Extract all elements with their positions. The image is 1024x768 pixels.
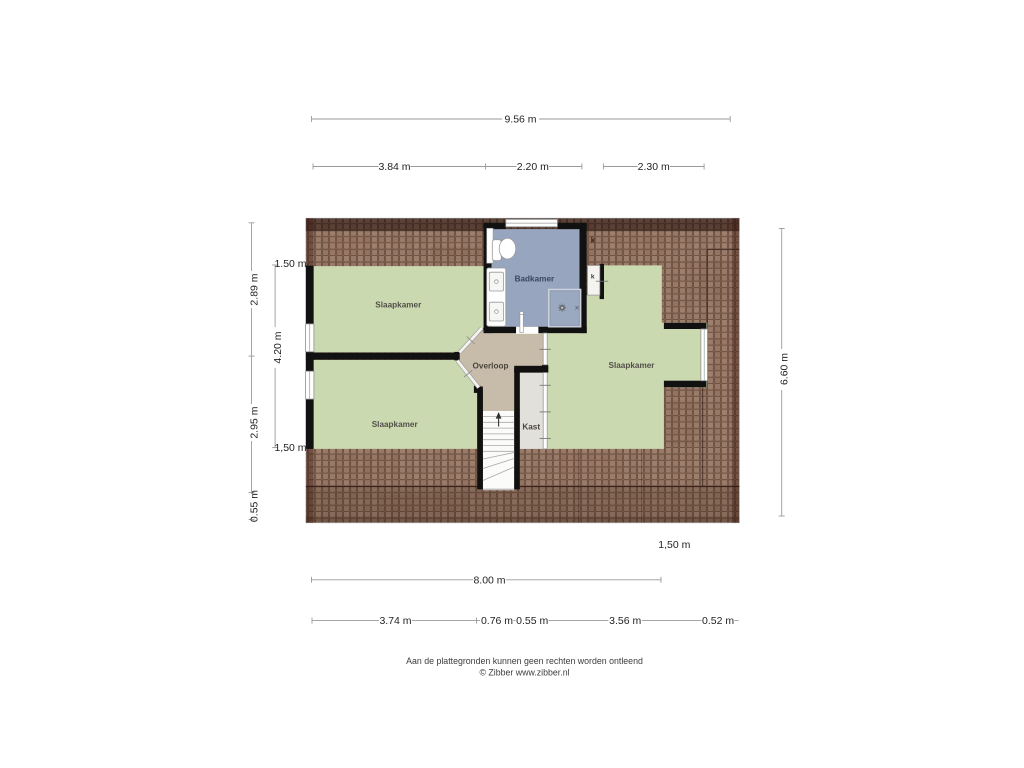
svg-text:Kast: Kast: [522, 422, 540, 431]
svg-text:3.56 m: 3.56 m: [609, 615, 641, 627]
svg-text:k: k: [591, 273, 595, 280]
svg-text:0.55 m: 0.55 m: [249, 490, 261, 522]
svg-text:Aan de plattegronden kunnen ge: Aan de plattegronden kunnen geen rechten…: [406, 656, 643, 666]
svg-text:3.84 m: 3.84 m: [378, 161, 410, 173]
svg-text:0.76 m: 0.76 m: [481, 615, 513, 627]
svg-text:3.74 m: 3.74 m: [379, 615, 411, 627]
svg-text:4.20 m: 4.20 m: [272, 331, 284, 363]
svg-text:Slaapkamer: Slaapkamer: [609, 361, 656, 370]
svg-text:2.89 m: 2.89 m: [249, 273, 261, 305]
svg-text:1,50 m: 1,50 m: [274, 442, 306, 454]
svg-text:2.95 m: 2.95 m: [249, 406, 261, 438]
svg-text:0.55 m: 0.55 m: [516, 615, 548, 627]
svg-text:6.60 m: 6.60 m: [779, 353, 791, 385]
svg-text:© Zibber www.zibber.nl: © Zibber www.zibber.nl: [479, 668, 569, 678]
svg-text:2.20 m: 2.20 m: [517, 161, 549, 173]
svg-text:8.00 m: 8.00 m: [473, 574, 505, 586]
svg-text:1,50 m: 1,50 m: [658, 539, 690, 551]
svg-text:1.50 m: 1.50 m: [274, 258, 306, 270]
svg-text:9.56 m: 9.56 m: [504, 114, 536, 126]
svg-text:Overloop: Overloop: [473, 361, 509, 370]
svg-text:Slaapkamer: Slaapkamer: [372, 420, 419, 429]
svg-text:0.52 m: 0.52 m: [702, 615, 734, 627]
svg-text:Badkamer: Badkamer: [515, 274, 555, 283]
svg-text:Slaapkamer: Slaapkamer: [375, 301, 422, 310]
svg-text:2.30 m: 2.30 m: [638, 161, 670, 173]
svg-text:k: k: [591, 237, 595, 244]
